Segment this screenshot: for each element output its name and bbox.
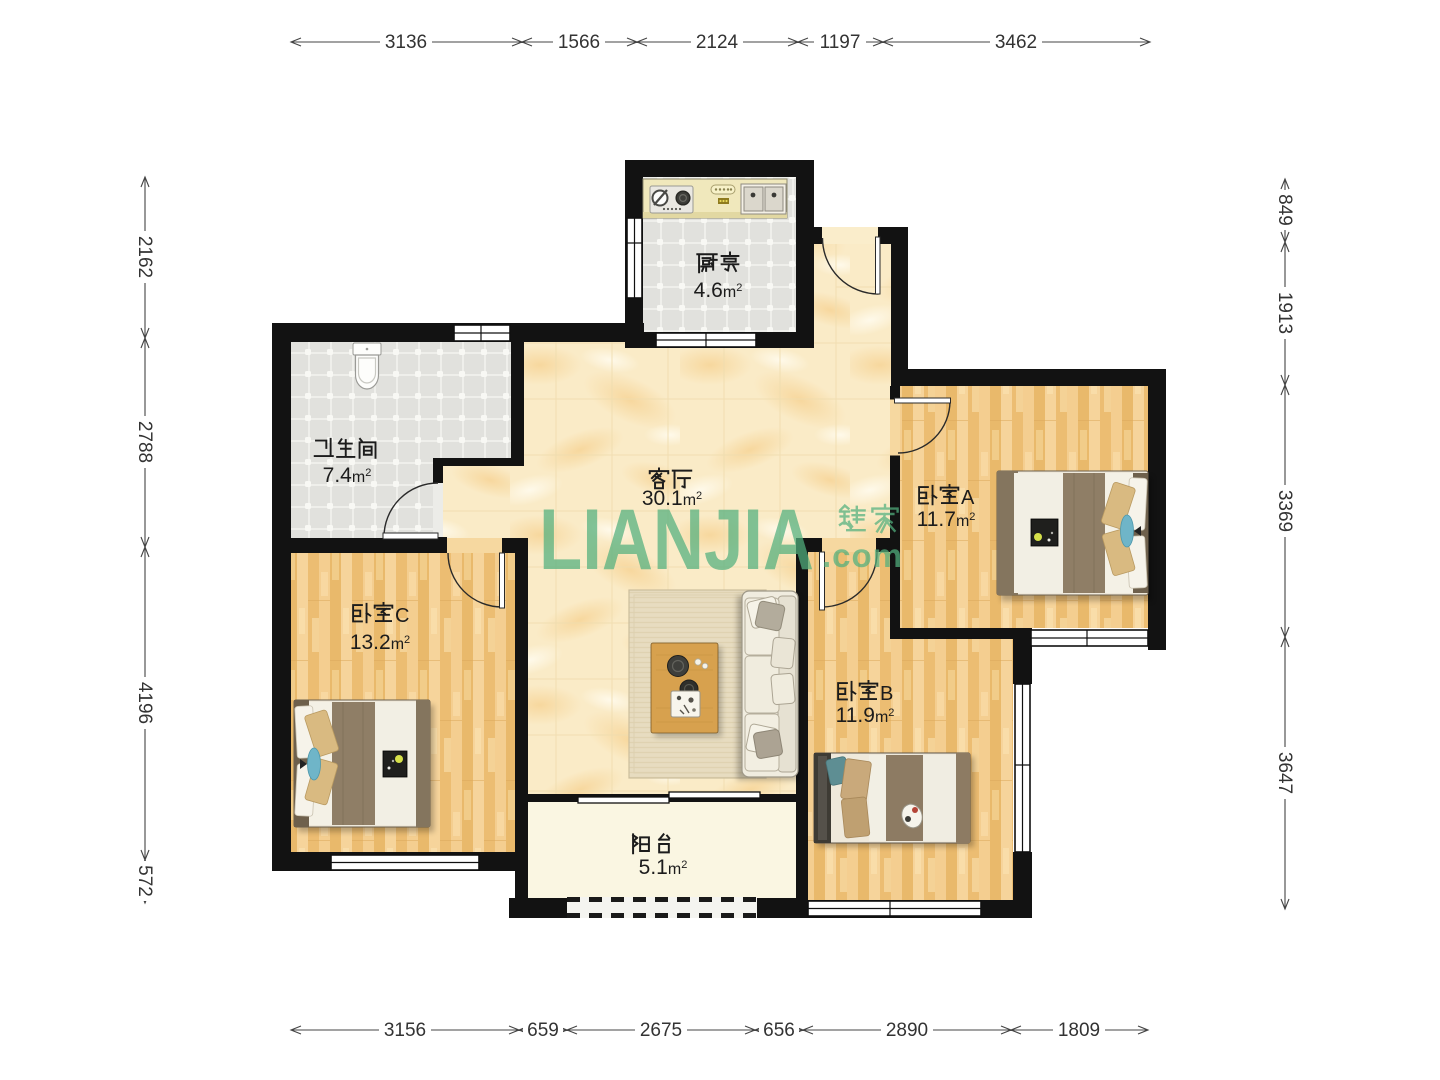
svg-text:LIANJIA: LIANJIA [539,492,814,588]
svg-text:2675: 2675 [640,1020,682,1041]
svg-text:1197: 1197 [820,32,861,53]
svg-text:3156: 3156 [384,1020,426,1041]
svg-text:659: 659 [527,1020,559,1041]
svg-text:2890: 2890 [886,1020,928,1041]
svg-text:3462: 3462 [995,32,1037,53]
svg-text:A: A [961,487,975,509]
svg-text:3369: 3369 [1274,490,1295,532]
svg-text:.com: .com [822,537,903,574]
svg-text:656: 656 [763,1020,795,1041]
svg-text:3136: 3136 [385,32,427,53]
svg-text:2124: 2124 [696,32,739,53]
svg-text:849: 849 [1274,194,1295,226]
svg-text:4196: 4196 [134,682,155,724]
svg-text:B: B [880,683,893,705]
svg-text:2162: 2162 [134,236,155,278]
svg-text:1809: 1809 [1058,1020,1100,1041]
svg-text:2788: 2788 [134,421,155,463]
svg-text:3647: 3647 [1274,752,1295,794]
svg-text:1913: 1913 [1274,292,1295,334]
svg-text:572: 572 [134,865,155,897]
svg-text:1566: 1566 [558,32,600,53]
svg-text:C: C [395,605,409,627]
